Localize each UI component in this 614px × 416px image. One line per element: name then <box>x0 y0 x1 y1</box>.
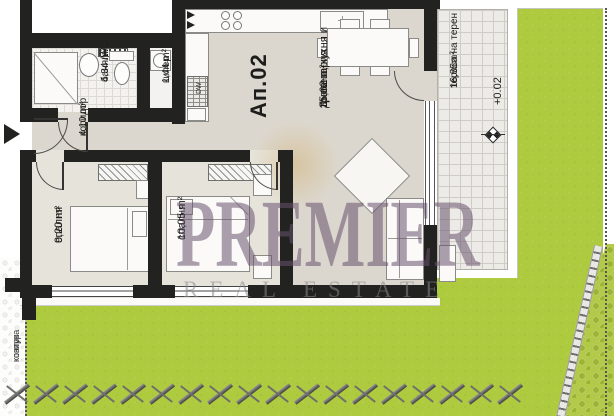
wall-segment <box>88 108 185 122</box>
bedroom1-window <box>52 286 133 297</box>
watermark-brand: PREMIER <box>176 196 480 271</box>
fence-mark-icon <box>263 382 293 406</box>
bed-line <box>127 208 128 270</box>
fence-mark-icon <box>379 382 409 406</box>
corner-cabinet-mark <box>187 11 195 19</box>
decor: +0.02 <box>492 77 505 105</box>
decor: 1,44 m² <box>161 49 173 83</box>
fence-mark-icon <box>205 382 235 406</box>
watermark-tagline: REAL ESTATE <box>183 277 450 303</box>
kitchen-cabinet <box>187 108 206 121</box>
decor: 16,85m² <box>449 51 461 88</box>
chair <box>340 66 360 76</box>
wall-segment <box>64 150 250 162</box>
washbasin <box>79 53 99 77</box>
wall-segment <box>20 285 52 298</box>
wall-segment <box>172 0 440 9</box>
fence-mark-icon <box>176 382 206 406</box>
fence-mark-icon <box>350 382 380 406</box>
stove-burner <box>221 21 230 30</box>
chair <box>340 19 360 29</box>
wall-segment <box>148 162 162 298</box>
floor-plan: Ап.02 Дневна, кухня и трапезария 35,62 m… <box>0 0 614 416</box>
fence-mark-icon <box>147 382 177 406</box>
fence-mark-icon <box>2 382 32 406</box>
wall-segment <box>172 0 185 124</box>
wall-segment <box>133 285 175 298</box>
pillow <box>132 211 147 237</box>
site-boundary-dotted <box>605 8 607 416</box>
corner-cabinet-mark <box>187 21 195 29</box>
stove-burner <box>221 11 230 20</box>
wall-segment <box>20 155 32 298</box>
wall-segment <box>278 150 293 162</box>
fence-mark-icon <box>321 382 351 406</box>
fence-mark-icon <box>408 382 438 406</box>
fence-mark-icon <box>437 382 467 406</box>
fence-mark-icon <box>234 382 264 406</box>
decor: 35,62 m² <box>318 65 331 108</box>
chair <box>409 38 419 58</box>
stove-burner <box>233 11 242 20</box>
terrace-door-threshold <box>424 71 437 101</box>
decor: козирка <box>11 330 21 362</box>
decor: Ап.02 <box>246 53 271 118</box>
fence-mark-icon <box>89 382 119 406</box>
fence-mark-icon <box>495 382 525 406</box>
wardrobe <box>98 164 148 181</box>
fence-mark-icon <box>31 382 61 406</box>
elevation-marker-line <box>481 134 505 135</box>
toilet-bowl <box>114 62 130 85</box>
fence-mark-icon <box>292 382 322 406</box>
wall-segment <box>137 48 150 112</box>
fence-line <box>0 382 545 408</box>
fence-mark-icon <box>60 382 90 406</box>
fence-mark-icon <box>466 382 496 406</box>
toilet-cistern <box>109 51 134 61</box>
canopy-wall-stub <box>22 298 36 320</box>
decor: 4,34 m² <box>100 48 112 82</box>
wall-segment <box>424 9 437 71</box>
decor: DW <box>196 82 204 94</box>
chair <box>370 19 390 29</box>
bedroom1-door-leaf <box>62 162 64 190</box>
entrance-door-leaf <box>34 118 68 120</box>
dining-table <box>327 28 409 67</box>
terrace-margin <box>508 9 517 270</box>
entrance-arrow-icon <box>4 124 20 144</box>
neighbor-unit <box>32 0 172 33</box>
fence-mark-icon <box>118 382 148 406</box>
decor: 4,10 m² <box>78 102 90 136</box>
canopy-wall-stub <box>5 278 20 292</box>
stove-burner <box>233 21 242 30</box>
decor: 9,20 m² <box>53 206 66 243</box>
chair <box>370 66 390 76</box>
